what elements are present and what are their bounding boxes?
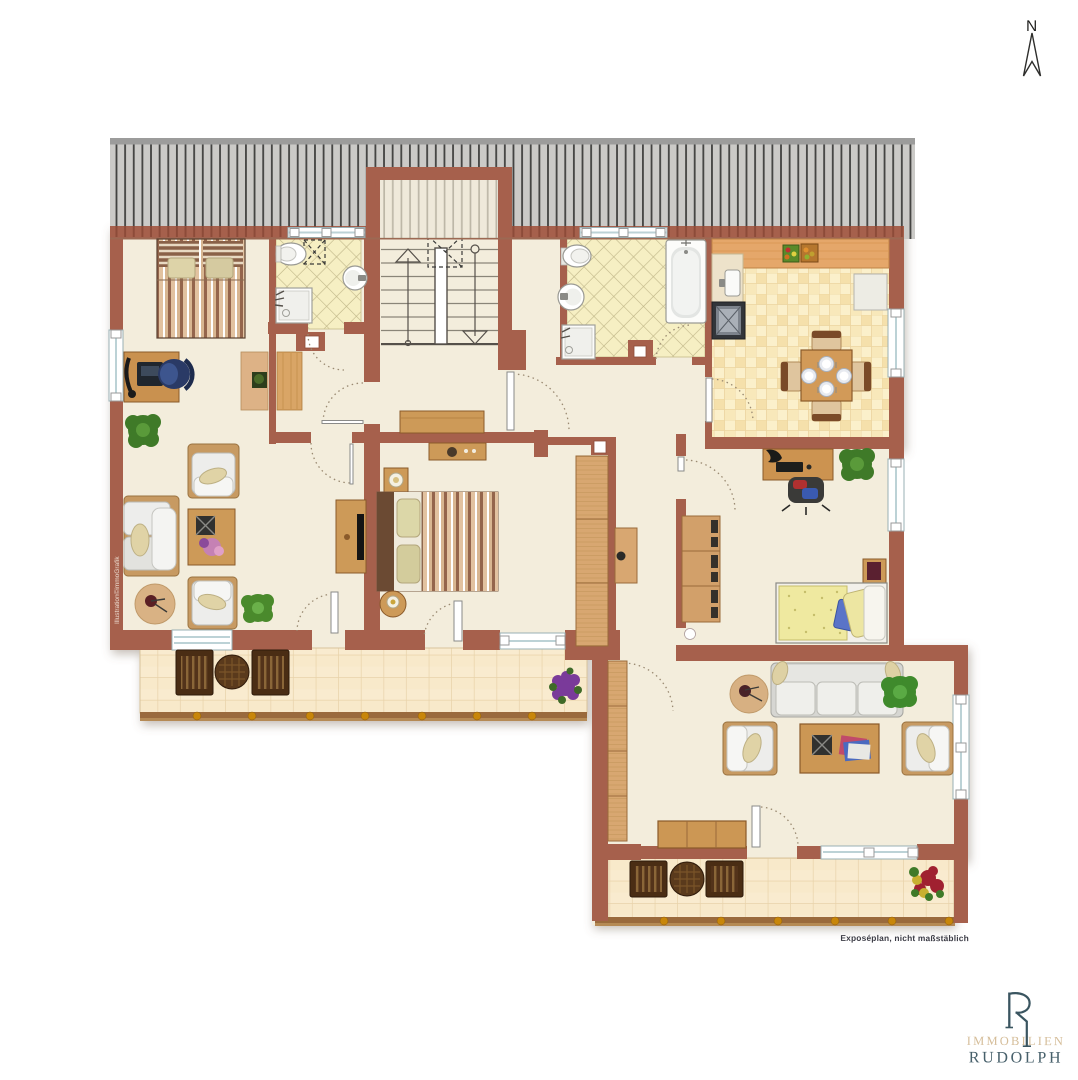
svg-text:Illustration©immoGrafik: Illustration©immoGrafik — [113, 556, 121, 624]
svg-text:RUDOLPH: RUDOLPH — [969, 1049, 1064, 1066]
svg-text:N: N — [1026, 18, 1037, 35]
svg-text:IMMOBILIEN: IMMOBILIEN — [967, 1034, 1065, 1048]
svg-text:Exposéplan, nicht maßstäblich: Exposéplan, nicht maßstäblich — [840, 933, 969, 943]
